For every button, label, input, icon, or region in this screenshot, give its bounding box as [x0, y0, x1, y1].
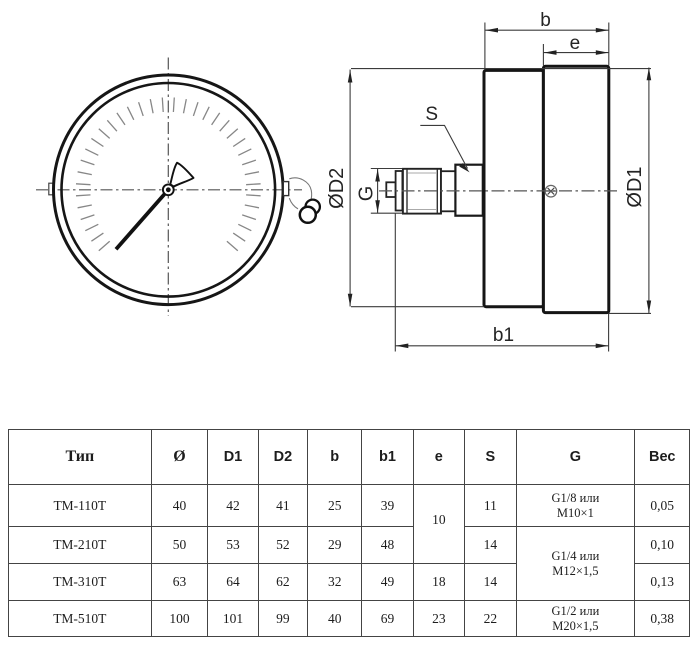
svg-text:b1: b1 [493, 325, 514, 346]
svg-text:b: b [540, 10, 551, 31]
svg-text:ØD1: ØD1 [624, 166, 646, 207]
svg-text:G: G [355, 186, 377, 202]
svg-text:S: S [425, 104, 438, 125]
svg-text:e: e [570, 33, 581, 54]
svg-text:ØD2: ØD2 [326, 168, 348, 209]
